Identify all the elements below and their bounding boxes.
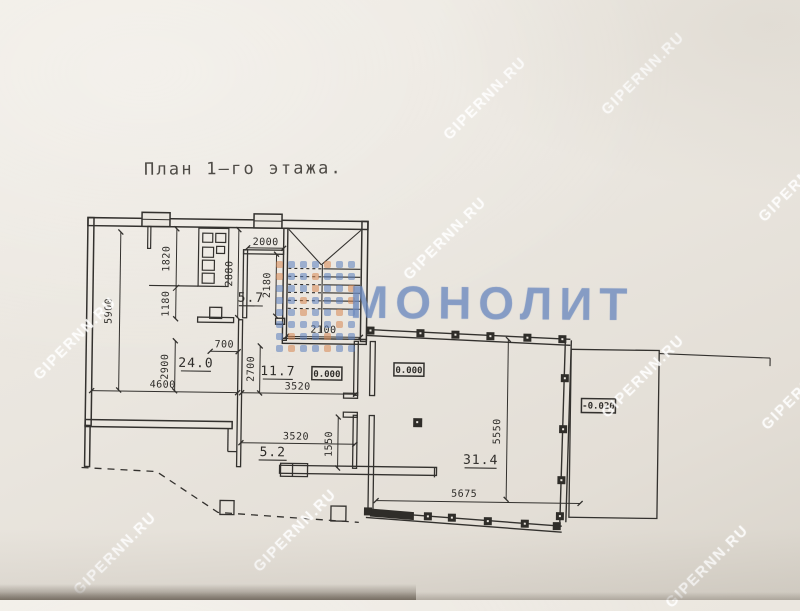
glazed-wall-bottom bbox=[364, 507, 562, 532]
dim-4600: 4600 bbox=[150, 379, 176, 390]
dim-2700: 2700 bbox=[246, 356, 257, 382]
elevation-terrace: -0.020 bbox=[582, 401, 615, 411]
room-label-11.7: 11.7 bbox=[260, 364, 296, 379]
floor-plan-photo: { "title": "План 1–го этажа.", "watermar… bbox=[0, 0, 800, 600]
interior-walls bbox=[195, 249, 440, 512]
canopy-outline bbox=[81, 467, 360, 522]
dim-5675: 5675 bbox=[451, 489, 477, 500]
dim-5550: 5550 bbox=[492, 418, 503, 444]
elevation-hall-zero: 0.000 bbox=[313, 370, 340, 380]
glazed-wall-top bbox=[366, 326, 570, 345]
dim-3520-lower: 3520 bbox=[283, 431, 309, 442]
room-label-5.7: 5.7 bbox=[238, 291, 265, 306]
room-label-24.0: 24.0 bbox=[178, 356, 214, 371]
dim-1180: 1180 bbox=[161, 291, 172, 317]
room-label-31.4: 31.4 bbox=[463, 453, 499, 468]
dim-1820: 1820 bbox=[161, 246, 172, 272]
furniture-closet bbox=[147, 226, 229, 286]
dim-2000: 2000 bbox=[253, 237, 279, 248]
canopy-post bbox=[331, 506, 346, 521]
floor-plan-drawing: 5900 1820 1180 2880 2000 2180 700 2900 4… bbox=[0, 0, 800, 600]
photo-edge-shadow-soft bbox=[0, 592, 800, 600]
stairs bbox=[287, 229, 360, 333]
dim-700: 700 bbox=[214, 339, 234, 350]
dim-2900: 2900 bbox=[160, 354, 171, 380]
dim-2880: 2880 bbox=[224, 260, 235, 286]
dim-2100: 2100 bbox=[310, 325, 336, 336]
top-wall-windows bbox=[142, 212, 282, 228]
elevation-main-zero: 0.000 bbox=[395, 366, 422, 376]
terrace bbox=[569, 349, 770, 520]
interior-column bbox=[413, 418, 422, 427]
dim-1550: 1550 bbox=[324, 431, 335, 457]
room-label-5.2: 5.2 bbox=[259, 445, 286, 460]
dim-5900: 5900 bbox=[104, 298, 115, 324]
dim-3520-upper: 3520 bbox=[285, 381, 311, 392]
